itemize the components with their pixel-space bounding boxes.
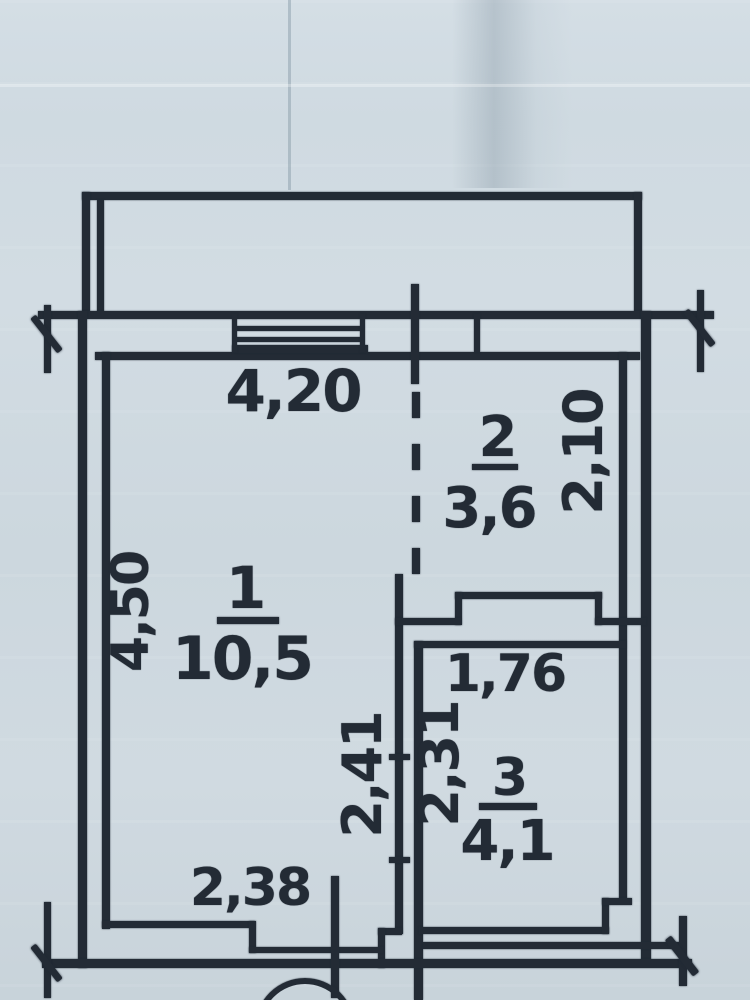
- room3-bottom-outer-line: [423, 942, 683, 949]
- balcony-wall-left-inner: [97, 200, 104, 314]
- top-wall-inner-line: [95, 352, 640, 360]
- extension-bar-bottom-middle: [331, 876, 339, 998]
- dimension-top-width: 4,20: [225, 362, 360, 420]
- room-2-area: 3,6: [442, 481, 535, 537]
- dimension-room2-depth: 2,10: [557, 389, 611, 514]
- right-wall-inner: [619, 352, 627, 903]
- window-jamb-right: [360, 314, 365, 352]
- extension-bar-top-middle: [411, 284, 419, 384]
- room1-bottom-inner-line: [102, 921, 255, 928]
- extension-bar-bottom-left: [44, 902, 51, 998]
- balcony-wall-top: [82, 192, 642, 200]
- right-wall-outer: [641, 311, 651, 965]
- paper-fold-line: [0, 84, 750, 87]
- window-jamb-left: [232, 314, 237, 352]
- bottom-dimension-line: [42, 959, 692, 968]
- balcony-wall-right: [634, 192, 642, 314]
- floor-plan: 1 10,5 2 3,6 3 4,1 4,20 2,10 4,50 2,41 2…: [0, 0, 750, 1000]
- left-wall-outer: [78, 311, 87, 968]
- window-sill-line: [232, 345, 368, 353]
- dimension-bottom-width: 2,38: [190, 862, 310, 914]
- room-1-number: 1: [226, 559, 264, 617]
- dimension-partition-height: 2,41: [336, 712, 390, 837]
- room3-bottom-inner-line: [419, 927, 609, 934]
- balcony-door-jamb: [474, 314, 480, 352]
- step-wall-left-horizontal: [395, 618, 461, 625]
- room-3-number: 3: [492, 752, 526, 804]
- room-2-number-underline: [472, 464, 518, 470]
- paper-crease-line: [288, 0, 291, 190]
- step-wall-right-horizontal: [595, 618, 646, 625]
- top-dimension-line: [38, 311, 714, 319]
- step-wall-middle-top: [455, 592, 602, 599]
- room-2-number: 2: [479, 410, 516, 466]
- window-glass-line-1: [236, 326, 364, 331]
- dashed-partition-segment: [412, 496, 420, 522]
- room-1-number-underline: [217, 617, 279, 624]
- dashed-partition-segment: [412, 444, 420, 470]
- dashed-partition-segment: [412, 548, 420, 574]
- room3-notch-horizontal: [602, 898, 632, 905]
- door-swing-arc: [255, 978, 355, 1000]
- window-glass-line-2: [236, 337, 364, 342]
- dimension-room3-width: 1,76: [445, 648, 565, 700]
- room-1-area: 10,5: [172, 629, 312, 689]
- paper-shadow-streak: [452, 0, 572, 188]
- dimension-left-height: 4,50: [105, 552, 157, 672]
- balcony-wall-left-outer: [82, 192, 90, 314]
- partition-tick-stub-lower: [389, 857, 410, 863]
- door-threshold-line: [249, 947, 383, 953]
- room-3-area: 4,1: [460, 814, 553, 870]
- dimension-room3-depth: 2,31: [413, 701, 467, 826]
- dashed-partition-segment: [412, 392, 420, 418]
